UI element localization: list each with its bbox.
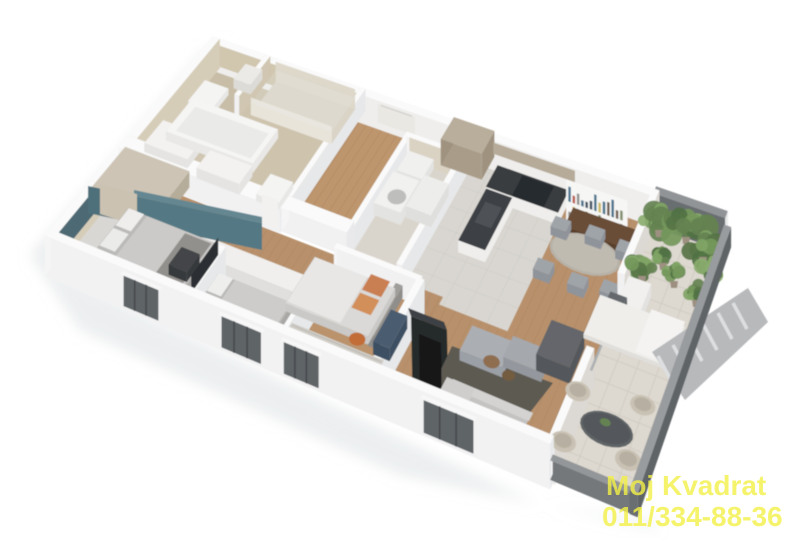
- svg-text:Moj Kvadrat: Moj Kvadrat: [606, 470, 766, 501]
- svg-text:011/334-88-36: 011/334-88-36: [602, 501, 783, 532]
